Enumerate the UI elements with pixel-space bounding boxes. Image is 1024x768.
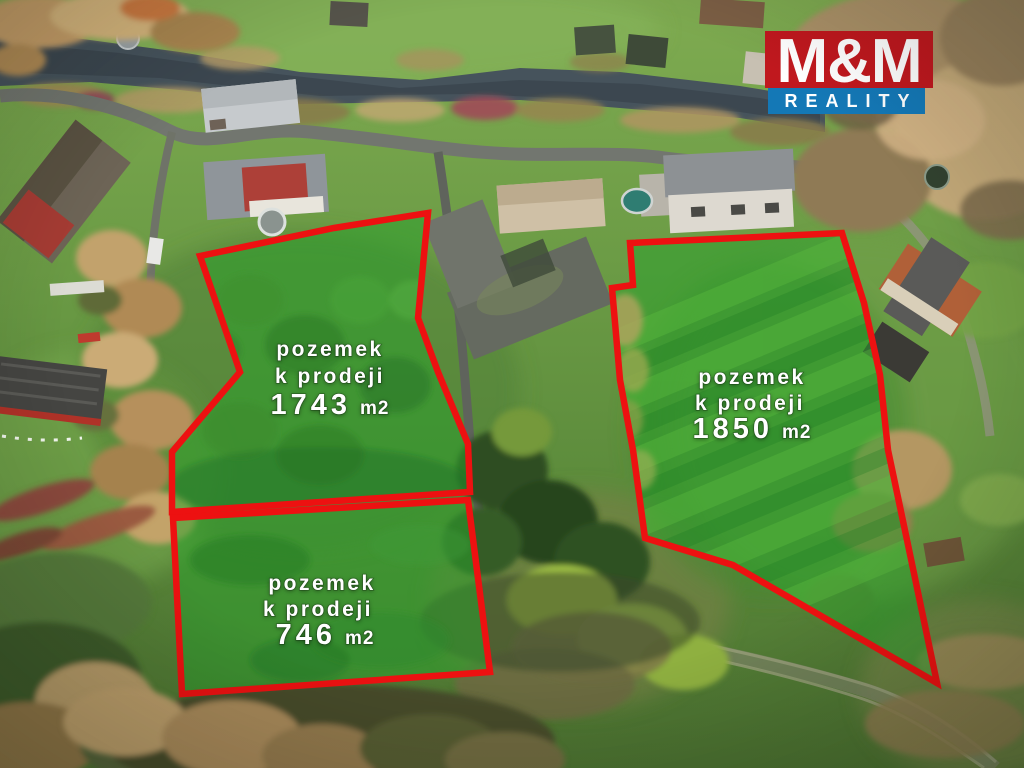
vignette	[0, 0, 1024, 768]
aerial-scene: pozemek k prodeji 1743m2 pozemek k prode…	[0, 0, 1024, 768]
aerial-photo: pozemek k prodeji 1743m2 pozemek k prode…	[0, 0, 1024, 768]
